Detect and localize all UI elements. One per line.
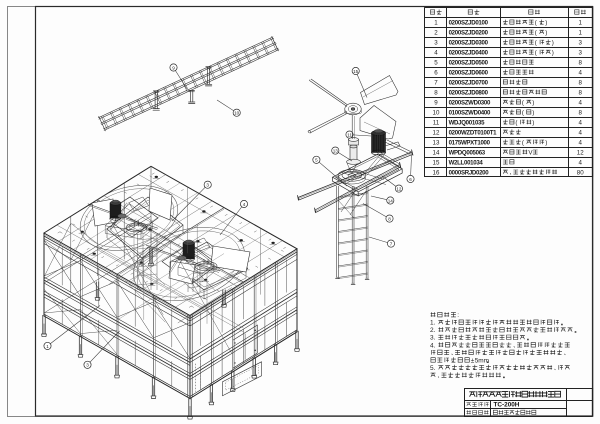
svg-text:12: 12 <box>396 187 402 192</box>
svg-text:15: 15 <box>433 160 440 167</box>
svg-text:6: 6 <box>409 177 412 182</box>
svg-text:0200SZJD0200: 0200SZJD0200 <box>449 30 489 37</box>
svg-text:0200SZJD0100: 0200SZJD0100 <box>449 20 489 27</box>
svg-text:1: 1 <box>578 30 582 37</box>
svg-text:4: 4 <box>578 130 582 137</box>
svg-text:4: 4 <box>578 140 582 147</box>
svg-text:2: 2 <box>434 30 438 37</box>
svg-text:3: 3 <box>578 40 582 47</box>
svg-text:10: 10 <box>234 111 240 116</box>
svg-text:3.: 3. <box>430 335 436 342</box>
svg-text:15: 15 <box>353 69 359 74</box>
svg-text:14: 14 <box>388 198 394 203</box>
svg-text:8: 8 <box>578 80 582 87</box>
svg-text:0200SZJD0300: 0200SZJD0300 <box>449 40 489 47</box>
svg-text::: : <box>457 312 459 319</box>
svg-text:8: 8 <box>578 60 582 67</box>
svg-text:11: 11 <box>347 133 352 138</box>
svg-text:W2LL001034: W2LL001034 <box>449 160 484 167</box>
svg-text:0000SRJD0200: 0000SRJD0200 <box>449 170 490 177</box>
svg-text:5mm: 5mm <box>475 357 489 364</box>
svg-text:13: 13 <box>333 149 339 154</box>
svg-text:2.: 2. <box>430 327 436 334</box>
svg-text:3: 3 <box>206 183 209 188</box>
svg-text:): ) <box>532 99 534 106</box>
svg-text:10: 10 <box>433 110 440 117</box>
svg-text:1: 1 <box>434 20 438 27</box>
svg-text:0200SZJD0800: 0200SZJD0800 <box>449 90 489 97</box>
svg-text:4: 4 <box>243 202 246 207</box>
svg-text:12: 12 <box>433 130 440 137</box>
svg-text:4.: 4. <box>430 342 436 349</box>
svg-text:8: 8 <box>578 110 582 117</box>
svg-text:3: 3 <box>86 363 89 368</box>
svg-text:0200SZJD0700: 0200SZJD0700 <box>449 80 489 87</box>
svg-text:3: 3 <box>578 50 582 57</box>
svg-text:0200WZDT0100T1: 0200WZDT0100T1 <box>449 130 498 137</box>
svg-text:5: 5 <box>434 60 438 67</box>
svg-text:9: 9 <box>172 65 175 70</box>
svg-text:): ) <box>545 29 547 36</box>
svg-text:7: 7 <box>390 242 393 247</box>
svg-text:16: 16 <box>433 170 440 177</box>
svg-text:14: 14 <box>433 150 440 157</box>
svg-text:4: 4 <box>578 120 582 127</box>
svg-text:0175WPXT1000: 0175WPXT1000 <box>449 140 491 147</box>
svg-text:): ) <box>545 139 547 146</box>
svg-text:0200SZWD0300: 0200SZWD0300 <box>449 100 491 107</box>
svg-text:): ) <box>552 49 554 56</box>
svg-text:1: 1 <box>46 344 49 349</box>
svg-text:0100SZWD0400: 0100SZWD0400 <box>449 110 491 117</box>
svg-text:8: 8 <box>434 90 438 97</box>
svg-text:12: 12 <box>577 150 584 157</box>
svg-text:3: 3 <box>434 40 438 47</box>
svg-text:9: 9 <box>434 100 438 107</box>
svg-text:0200SZJD0600: 0200SZJD0600 <box>449 70 489 77</box>
svg-text:80: 80 <box>577 170 584 177</box>
svg-text:8: 8 <box>578 90 582 97</box>
svg-text:4: 4 <box>434 50 438 57</box>
svg-text:1: 1 <box>578 20 582 27</box>
svg-text:7: 7 <box>434 80 438 87</box>
svg-text:11: 11 <box>433 120 440 127</box>
svg-text:8: 8 <box>388 217 391 222</box>
svg-text:TC-200H: TC-200H <box>494 402 520 409</box>
svg-text:): ) <box>532 109 534 116</box>
svg-text:13: 13 <box>433 140 440 147</box>
svg-text:4: 4 <box>578 70 582 77</box>
svg-text:5: 5 <box>315 158 318 163</box>
svg-text:): ) <box>532 119 534 126</box>
svg-text:): ) <box>552 39 554 46</box>
svg-text:0200SZJD0400: 0200SZJD0400 <box>449 50 489 57</box>
svg-text:0200SZJD0500: 0200SZJD0500 <box>449 60 489 67</box>
svg-text:WDJQ001035: WDJQ001035 <box>449 120 486 127</box>
svg-text:4: 4 <box>578 160 582 167</box>
svg-text:): ) <box>545 20 547 27</box>
svg-text:4: 4 <box>578 100 582 107</box>
svg-text:5.: 5. <box>430 365 436 372</box>
svg-text:WPDQ005063: WPDQ005063 <box>449 150 486 157</box>
svg-text:6: 6 <box>434 70 438 77</box>
svg-text:1.: 1. <box>430 320 436 327</box>
